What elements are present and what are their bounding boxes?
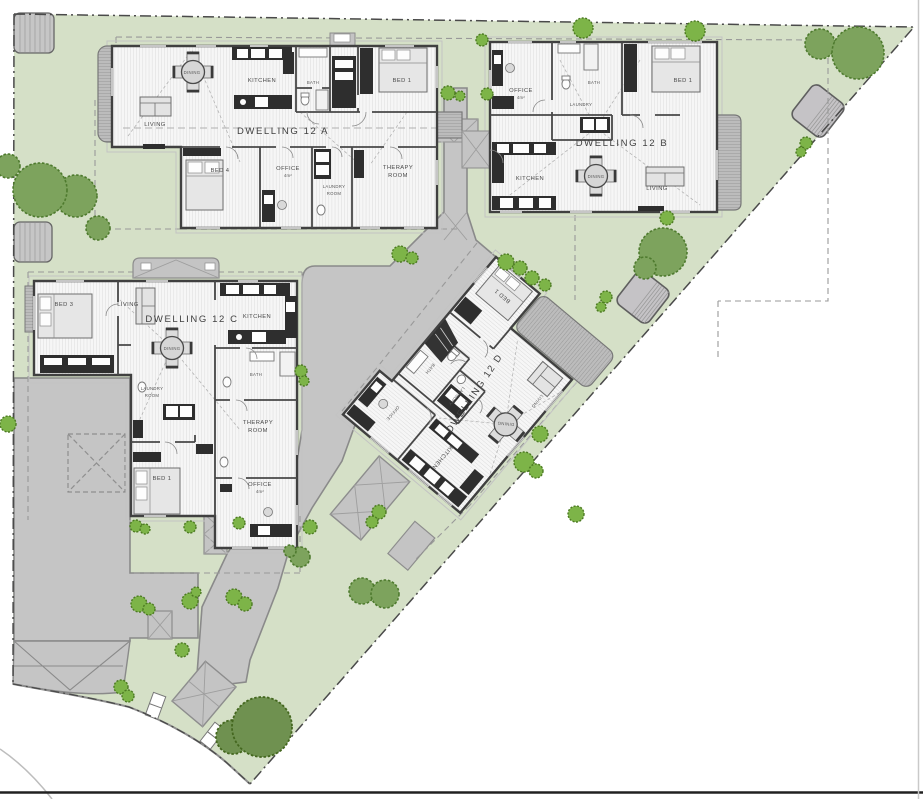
svg-text:KITCHEN: KITCHEN — [516, 176, 544, 182]
svg-text:LIVING: LIVING — [646, 186, 667, 192]
svg-text:DINING: DINING — [184, 70, 201, 75]
svg-text:BATH: BATH — [588, 80, 600, 85]
svg-text:LAUNDRY: LAUNDRY — [323, 184, 346, 189]
svg-text:4m²: 4m² — [517, 95, 526, 100]
svg-text:BATH: BATH — [250, 372, 262, 377]
svg-text:BED 1: BED 1 — [674, 78, 693, 84]
svg-text:BED 1: BED 1 — [153, 476, 172, 482]
svg-text:LAUNDRY: LAUNDRY — [570, 102, 593, 107]
svg-text:4m²: 4m² — [284, 173, 293, 178]
svg-text:LIVING: LIVING — [144, 122, 165, 128]
svg-text:ROOM: ROOM — [145, 393, 160, 398]
svg-text:BATH: BATH — [307, 80, 319, 85]
svg-text:THERAPY: THERAPY — [383, 165, 413, 171]
svg-text:DWELLING 12 A: DWELLING 12 A — [237, 126, 329, 137]
svg-text:ROOM: ROOM — [388, 173, 408, 179]
svg-text:LAUNDRY: LAUNDRY — [141, 386, 164, 391]
svg-text:OFFICE: OFFICE — [248, 482, 272, 488]
svg-text:DWELLING 12 B: DWELLING 12 B — [576, 138, 669, 149]
svg-text:KITCHEN: KITCHEN — [243, 314, 271, 320]
svg-text:DWELLING 12 C: DWELLING 12 C — [145, 314, 238, 325]
svg-text:4m²: 4m² — [256, 489, 265, 494]
svg-text:LIVING: LIVING — [117, 302, 138, 308]
svg-text:KITCHEN: KITCHEN — [248, 78, 276, 84]
svg-text:BED 1: BED 1 — [393, 78, 412, 84]
svg-text:THERAPY: THERAPY — [243, 420, 273, 426]
svg-text:DINING: DINING — [164, 346, 181, 351]
svg-text:BED 4: BED 4 — [211, 168, 230, 174]
svg-text:OFFICE: OFFICE — [276, 166, 300, 172]
svg-text:ROOM: ROOM — [327, 191, 342, 196]
svg-text:DINING: DINING — [588, 174, 605, 179]
svg-text:BED 3: BED 3 — [55, 302, 74, 308]
svg-text:OFFICE: OFFICE — [509, 88, 533, 94]
svg-text:ROOM: ROOM — [248, 428, 268, 434]
